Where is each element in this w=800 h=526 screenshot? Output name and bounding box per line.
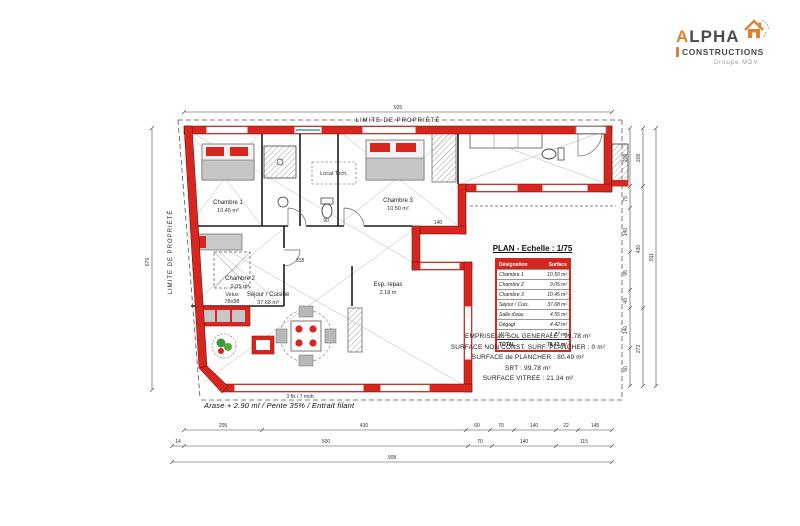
toilet-icon [542,148,564,160]
window [362,127,416,134]
table-row: Chambre 110.50 m² [497,269,569,279]
svg-text:140: 140 [530,423,539,429]
svg-text:10.45 m²: 10.45 m² [217,208,239,214]
svg-text:70: 70 [498,423,504,429]
svg-text:90: 90 [323,218,329,224]
svg-text:500: 500 [322,439,331,445]
boundary-label-top: LIMITE DE PROPRIÉTÉ [356,117,441,124]
svg-text:75: 75 [623,196,629,202]
svg-text:60: 60 [474,423,480,429]
table-row: Dégagt4.42 m² [497,319,569,329]
summary-line: EMPRISE au SOL GENERALE : 99.78 m² [430,332,626,343]
svg-text:140: 140 [434,220,443,226]
wardrobe-icon [432,132,456,182]
plan-title: PLAN - Echelle : 1/75 [470,244,595,253]
window [234,385,364,392]
svg-text:911: 911 [649,253,655,261]
svg-text:318: 318 [296,258,305,264]
svg-text:9.05 m²: 9.05 m² [231,284,250,290]
svg-text:14: 14 [175,439,181,445]
bed-icon [202,144,254,180]
sofa-icon [198,306,250,326]
roof-note: Arase + 2.90 ml / Pente 35% / Entrait fi… [204,401,354,410]
table-row: Chambre 29.05 m² [497,279,569,289]
svg-text:22: 22 [563,423,569,429]
shower-icon [264,146,296,178]
bed-icon [194,234,242,250]
svg-text:430: 430 [636,245,642,254]
page: ALPHA CONSTRUCTIONS Groupe MDV [0,0,800,526]
dining-table-icon [276,306,336,366]
surface-table-header: Désignation Surface [497,260,569,269]
sink-icon [278,197,288,207]
svg-text:78x98: 78x98 [225,299,240,305]
exterior-column [612,144,628,186]
svg-text:40: 40 [623,298,629,304]
bay-window-label: 3 fix / 7 mob [286,394,313,400]
svg-text:925: 925 [394,105,403,111]
svg-text:679: 679 [145,258,151,267]
svg-text:115: 115 [580,439,588,445]
window [476,185,518,192]
svg-text:2.18 m: 2.18 m [380,290,397,296]
room-label: Chambre 3 [383,198,413,204]
window [420,263,460,270]
shelf-icon [348,308,362,352]
summary-line: SURFACE VITREE : 21.34 m² [430,374,626,385]
room-label: Séjour / Cuisine [247,292,290,298]
svg-text:205: 205 [219,423,228,429]
window [380,385,430,392]
table-row: Séjour / Cuis.37.68 m² [497,299,569,309]
room-label: Velux [225,292,239,298]
svg-text:208: 208 [636,154,642,163]
summary-line: SRT : 99.78 m² [430,364,626,375]
bed-icon [366,140,424,180]
svg-text:10.50 m²: 10.50 m² [387,206,409,212]
room-label: Local Tech. [320,171,348,177]
table-row: Salle d'eau4.55 m² [497,309,569,319]
svg-text:908: 908 [388,455,397,461]
svg-text:430: 430 [360,423,369,429]
svg-text:208: 208 [623,154,629,163]
room-labels: Chambre 1 10.45 m² Chambre 2 9.05 m² Cha… [213,171,413,400]
svg-text:70: 70 [477,439,483,445]
window [542,185,588,192]
svg-text:273: 273 [636,345,642,354]
svg-text:37.68 m²: 37.68 m² [257,300,279,306]
kitchen-counter [470,132,542,148]
room-label: Esp. repas [374,282,403,288]
summary-line: SURFACE NON CONST. SURF. PLANCHER : 0 m² [430,343,626,354]
table-row: Chambre 310.45 m² [497,289,569,299]
plant-icon [212,334,236,358]
toilet-icon [321,198,333,218]
window [206,127,248,134]
velux-skylight [214,252,250,288]
svg-text:140: 140 [623,228,629,237]
svg-text:145: 145 [591,423,600,429]
armchair-icon [252,336,274,354]
surface-summary: EMPRISE au SOL GENERALE : 99.78 m² SURFA… [430,332,626,385]
boundary-label-left: LIMITE DE PROPRIÉTÉ [167,210,174,295]
room-label: Chambre 1 [213,200,243,206]
svg-text:95: 95 [623,270,629,276]
summary-line: SURFACE de PLANCHER : 80.49 m² [430,353,626,364]
room-label: Chambre 2 [225,276,255,282]
svg-text:140: 140 [520,439,529,445]
door-gap [576,127,606,134]
floor-plan-svg: Chambre 1 10.45 m² Chambre 2 9.05 m² Cha… [0,0,800,526]
